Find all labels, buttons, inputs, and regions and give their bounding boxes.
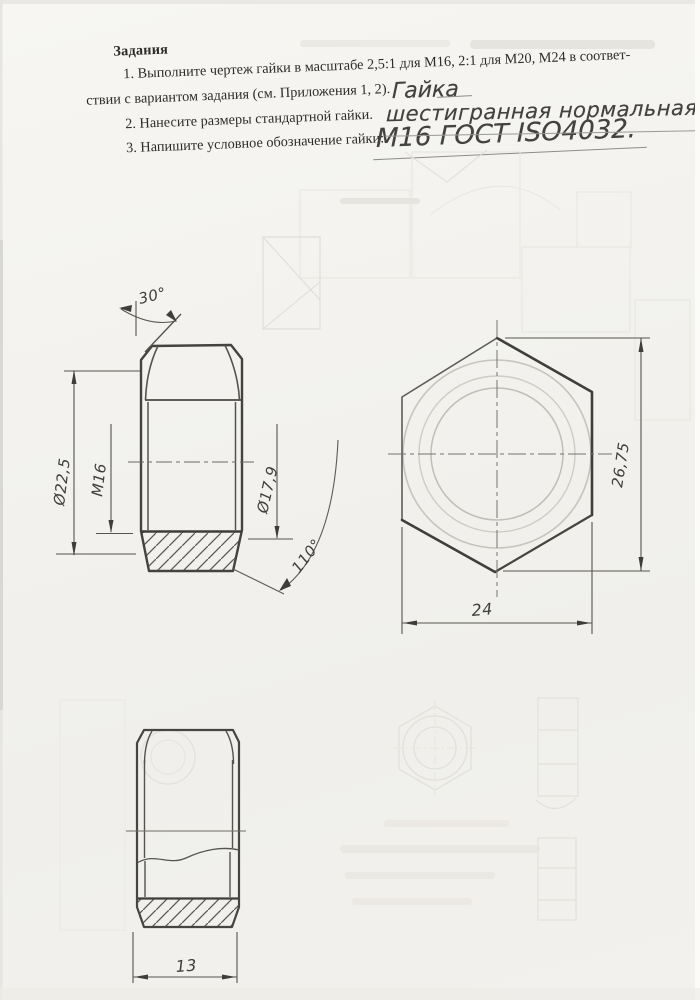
top-view: 26,75 24 [388, 320, 650, 634]
front-view: Ø22,5 M16 Ø17,9 110° [50, 284, 338, 594]
dim-label-across-flats: 24 [471, 599, 494, 620]
detail-view: 13 [126, 730, 246, 983]
dim-label-thread: M16 [88, 462, 110, 497]
dim-label-outer-diameter: Ø22,5 [50, 457, 74, 508]
dim-label-chamfer-angle: 30° [137, 284, 169, 308]
ghost-bleedthrough-marks [0, 0, 700, 1000]
scanned-worksheet-page: { "header": { "title": "Задания", "task1… [0, 0, 700, 1000]
detail-hatch-region [138, 899, 239, 926]
dim-label-detail-width: 13 [175, 956, 198, 976]
dim-bottom-angle [233, 440, 338, 594]
dim-label-across-corners: 26,75 [608, 441, 633, 489]
break-line [137, 848, 239, 863]
section-hatch-region [141, 532, 242, 571]
dim-label-bottom-angle: 110° [288, 535, 326, 576]
technical-drawing-svg: Ø22,5 M16 Ø17,9 110° [0, 0, 700, 1000]
paper-background: Задания 1. Выполните чертеж гайки в масш… [0, 0, 700, 1000]
